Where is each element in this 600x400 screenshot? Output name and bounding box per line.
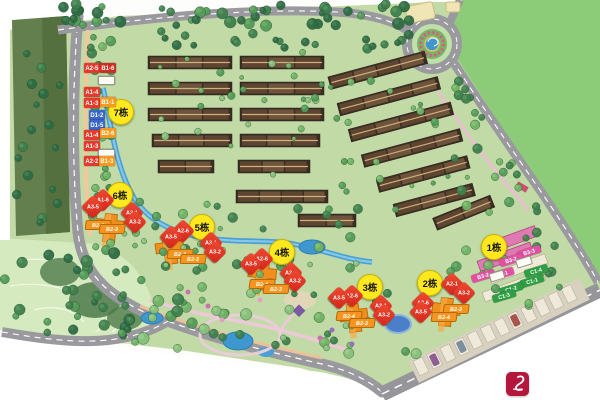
unit-label: B2-3	[262, 284, 289, 294]
unit-building-label: A1-4	[84, 87, 100, 97]
unit-building-label: B1-3	[99, 156, 115, 166]
unit-building-label: A1-3	[84, 98, 100, 108]
unit-building-label: B2-6	[100, 128, 116, 138]
building-label: C1-3	[492, 289, 517, 304]
residential-master-plan-map: 7栋6栋5栋4栋3栋2栋1栋A2-5B1-6A1-4A1-3B1-1D1-2D1…	[0, 0, 600, 400]
unit-building-label: A2-2	[84, 156, 100, 166]
unit-building-label: D1-2	[89, 110, 105, 120]
unit-building-label: B1-6	[100, 63, 116, 73]
unit-building-label: B1-1	[100, 97, 116, 107]
unit-label: B2-3	[179, 254, 206, 264]
unit-building-label: A1-4	[84, 130, 100, 140]
unit-building-label: A2-5	[84, 63, 100, 73]
unit-building-label	[98, 76, 115, 85]
unit-label: B2-3	[348, 318, 375, 328]
building-label: C1-1	[520, 274, 545, 289]
map-annotations: 7栋6栋5栋4栋3栋2栋1栋A2-5B1-6A1-4A1-3B1-1D1-2D1…	[0, 0, 600, 400]
unit-label: B2-3	[98, 224, 125, 234]
developer-logo-icon	[506, 372, 529, 396]
unit-label: B2-4	[430, 312, 457, 322]
building-marker: 1栋	[481, 234, 507, 260]
